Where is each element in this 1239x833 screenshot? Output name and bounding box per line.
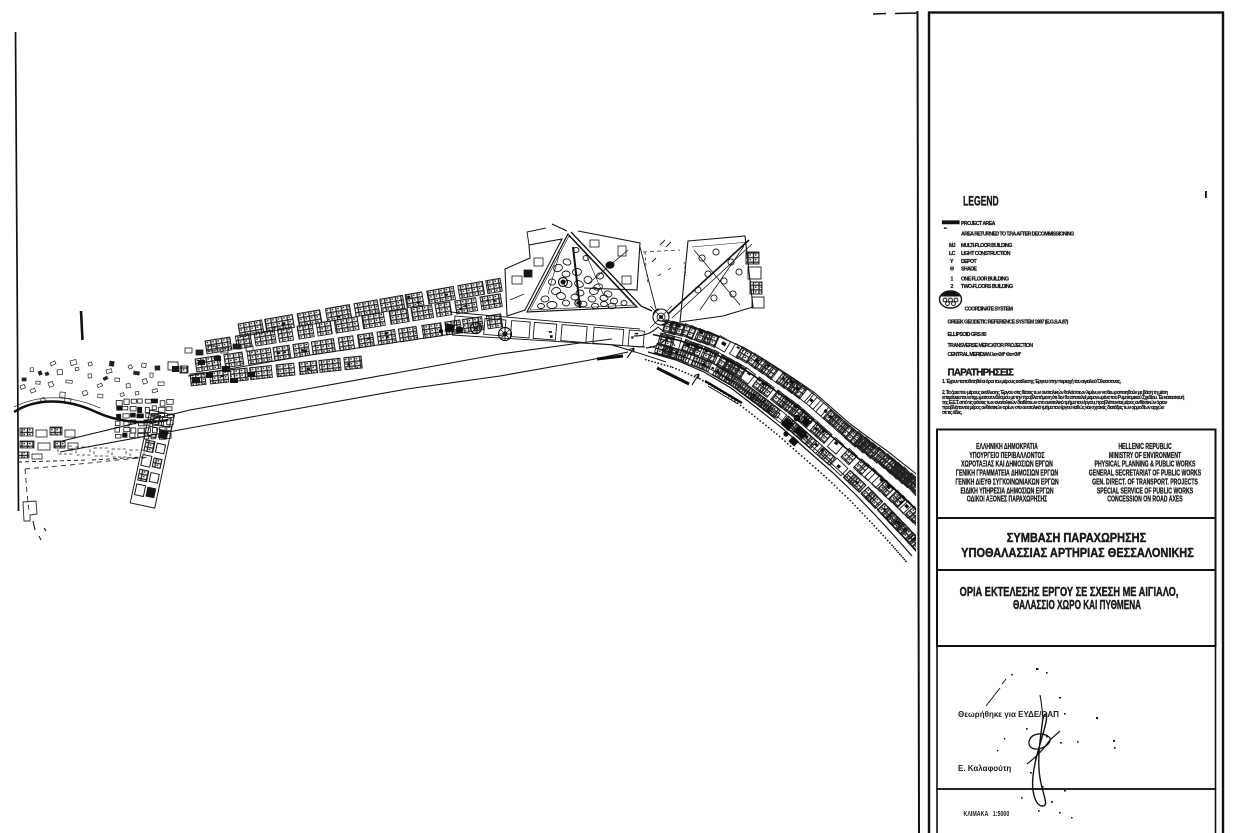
svg-text:ΥΠΟΘΑΛΑΣΣΙΑΣ ΑΡΤΗΡΙΑΣ ΘΕΣΣΑΛΟΝ: ΥΠΟΘΑΛΑΣΣΙΑΣ ΑΡΤΗΡΙΑΣ ΘΕΣΣΑΛΟΝΙΚΗΣ bbox=[961, 546, 1194, 560]
svg-text:ΟΔΙΚΟΙ ΑΞΟΝΕΣ ΠΑΡΑΧΩΡΗΣΗΣ: ΟΔΙΚΟΙ ΑΞΟΝΕΣ ΠΑΡΑΧΩΡΗΣΗΣ bbox=[967, 495, 1047, 503]
svg-text:GENERAL SECRETARIAT OF PUBLIC: GENERAL SECRETARIAT OF PUBLIC WORKS bbox=[1089, 469, 1202, 477]
svg-text:CONCESSION ON ROAD AXES: CONCESSION ON ROAD AXES bbox=[1107, 495, 1183, 503]
svg-text:PROJECT AREA: PROJECT AREA bbox=[961, 221, 996, 227]
svg-text:LEGEND: LEGEND bbox=[963, 195, 999, 209]
svg-text:ΘΑΛΑΣΣΙΟ ΧΩΡΟ ΚΑΙ ΠΥΘΜΕΝΑ: ΘΑΛΑΣΣΙΟ ΧΩΡΟ ΚΑΙ ΠΥΘΜΕΝΑ bbox=[1013, 598, 1141, 612]
svg-text:COORDINATE SYSTEM: COORDINATE SYSTEM bbox=[965, 307, 1013, 313]
svg-text:TRANSVERSE MERCATOR PROJECTION: TRANSVERSE MERCATOR PROJECTION bbox=[948, 343, 1034, 349]
svg-text:SHADE: SHADE bbox=[961, 267, 977, 273]
svg-text:MJ: MJ bbox=[949, 243, 956, 249]
svg-text:HELLENIC REPUBLIC: HELLENIC REPUBLIC bbox=[1118, 443, 1171, 451]
svg-text:ΥΠΟΥΡΓΕΙΟ ΠΕΡΙΒΑΛΛΟΝΤΟΣ: ΥΠΟΥΡΓΕΙΟ ΠΕΡΙΒΑΛΛΟΝΤΟΣ bbox=[969, 452, 1044, 460]
svg-text:GEN. DIRECT. OF TRANSPORT. PRO: GEN. DIRECT. OF TRANSPORT. PROJECTS bbox=[1092, 478, 1198, 486]
svg-text:ΓΕΝΙΚΗ ΔΙΕΥΘ ΣΥΓΚΟΙΝΩΝΙΑΚΩΝ ΕΡ: ΓΕΝΙΚΗ ΔΙΕΥΘ ΣΥΓΚΟΙΝΩΝΙΑΚΩΝ ΕΡΓΩΝ bbox=[955, 478, 1058, 486]
svg-text:CENTRAL MERIDIAN λο=24° Φο=34°: CENTRAL MERIDIAN λο=24° Φο=34° bbox=[948, 352, 1022, 358]
svg-text:ΧΩΡΟΤΑΞΙΑΣ ΚΑΙ ΔΗΜΟΣΙΩΝ ΕΡΓΩΝ: ΧΩΡΟΤΑΞΙΑΣ ΚΑΙ ΔΗΜΟΣΙΩΝ ΕΡΓΩΝ bbox=[961, 460, 1053, 468]
svg-text:MINISTRY OF ENVIRONMENT: MINISTRY OF ENVIRONMENT bbox=[1109, 452, 1182, 460]
svg-text:ΣΥΜΒΑΣΗ ΠΑΡΑΧΩΡΗΣΗΣ: ΣΥΜΒΑΣΗ ΠΑΡΑΧΩΡΗΣΗΣ bbox=[1007, 531, 1146, 545]
svg-text:προβλέπονται μέρος ανθέκτικών: προβλέπονται μέρος ανθέκτικών ορίων στο … bbox=[942, 405, 1165, 411]
svg-text:ΚΛΙΜΑΚΑ 1:5000: ΚΛΙΜΑΚΑ 1:5000 bbox=[964, 810, 1010, 818]
svg-text:ΓΕΝΙΚΗ ΓΡΑΜΜΑΤΕΙΑ ΔΗΜΟΣΙΩΝ ΕΡΓ: ΓΕΝΙΚΗ ΓΡΑΜΜΑΤΕΙΑ ΔΗΜΟΣΙΩΝ ΕΡΓΩΝ bbox=[956, 469, 1058, 477]
svg-text:Θ: Θ bbox=[950, 267, 954, 273]
svg-text:1. Έχουν τοποθετηθεί οι όροι τ: 1. Έχουν τοποθετηθεί οι όροι του μέρους … bbox=[942, 379, 1122, 385]
svg-text:PHYSICAL PLANNING & PUBLIC WOR: PHYSICAL PLANNING & PUBLIC WORKS bbox=[1095, 460, 1196, 468]
svg-text:ΠΑΡΑΤΗΡΗΣΕΙΣ: ΠΑΡΑΤΗΡΗΣΕΙΣ bbox=[948, 368, 1014, 379]
svg-text:GREEK GEODETIC REFERENCE SYSTE: GREEK GEODETIC REFERENCE SYSTEM 1987 (E.… bbox=[948, 320, 1069, 326]
svg-text:σε τις άδες.: σε τις άδες. bbox=[942, 410, 963, 416]
svg-text:ΕΛΛΗΝΙΚΗ ΔΗΜΟΚΡΑΤΙΑ: ΕΛΛΗΝΙΚΗ ΔΗΜΟΚΡΑΤΙΑ bbox=[976, 443, 1038, 451]
svg-text:ONE FLOOR BUILDING: ONE FLOOR BUILDING bbox=[961, 277, 1009, 283]
svg-text:DEPOT: DEPOT bbox=[961, 259, 978, 265]
svg-text:TWO-FLOORS BUILDING: TWO-FLOORS BUILDING bbox=[961, 284, 1013, 290]
svg-text:ELLIPSOID GRS 80: ELLIPSOID GRS 80 bbox=[948, 332, 987, 338]
svg-text:LIGHT CONSTRUCTION: LIGHT CONSTRUCTION bbox=[961, 251, 1011, 257]
svg-text:AREA RETURNED TO T.P.A AFTER D: AREA RETURNED TO T.P.A AFTER DECOMMISSIO… bbox=[961, 232, 1074, 238]
svg-text:MULTI-FLOOR BUILDING: MULTI-FLOOR BUILDING bbox=[961, 243, 1012, 249]
svg-text:LC: LC bbox=[949, 251, 956, 257]
svg-text:Ε. Καλαφούτη: Ε. Καλαφούτη bbox=[958, 764, 1011, 773]
